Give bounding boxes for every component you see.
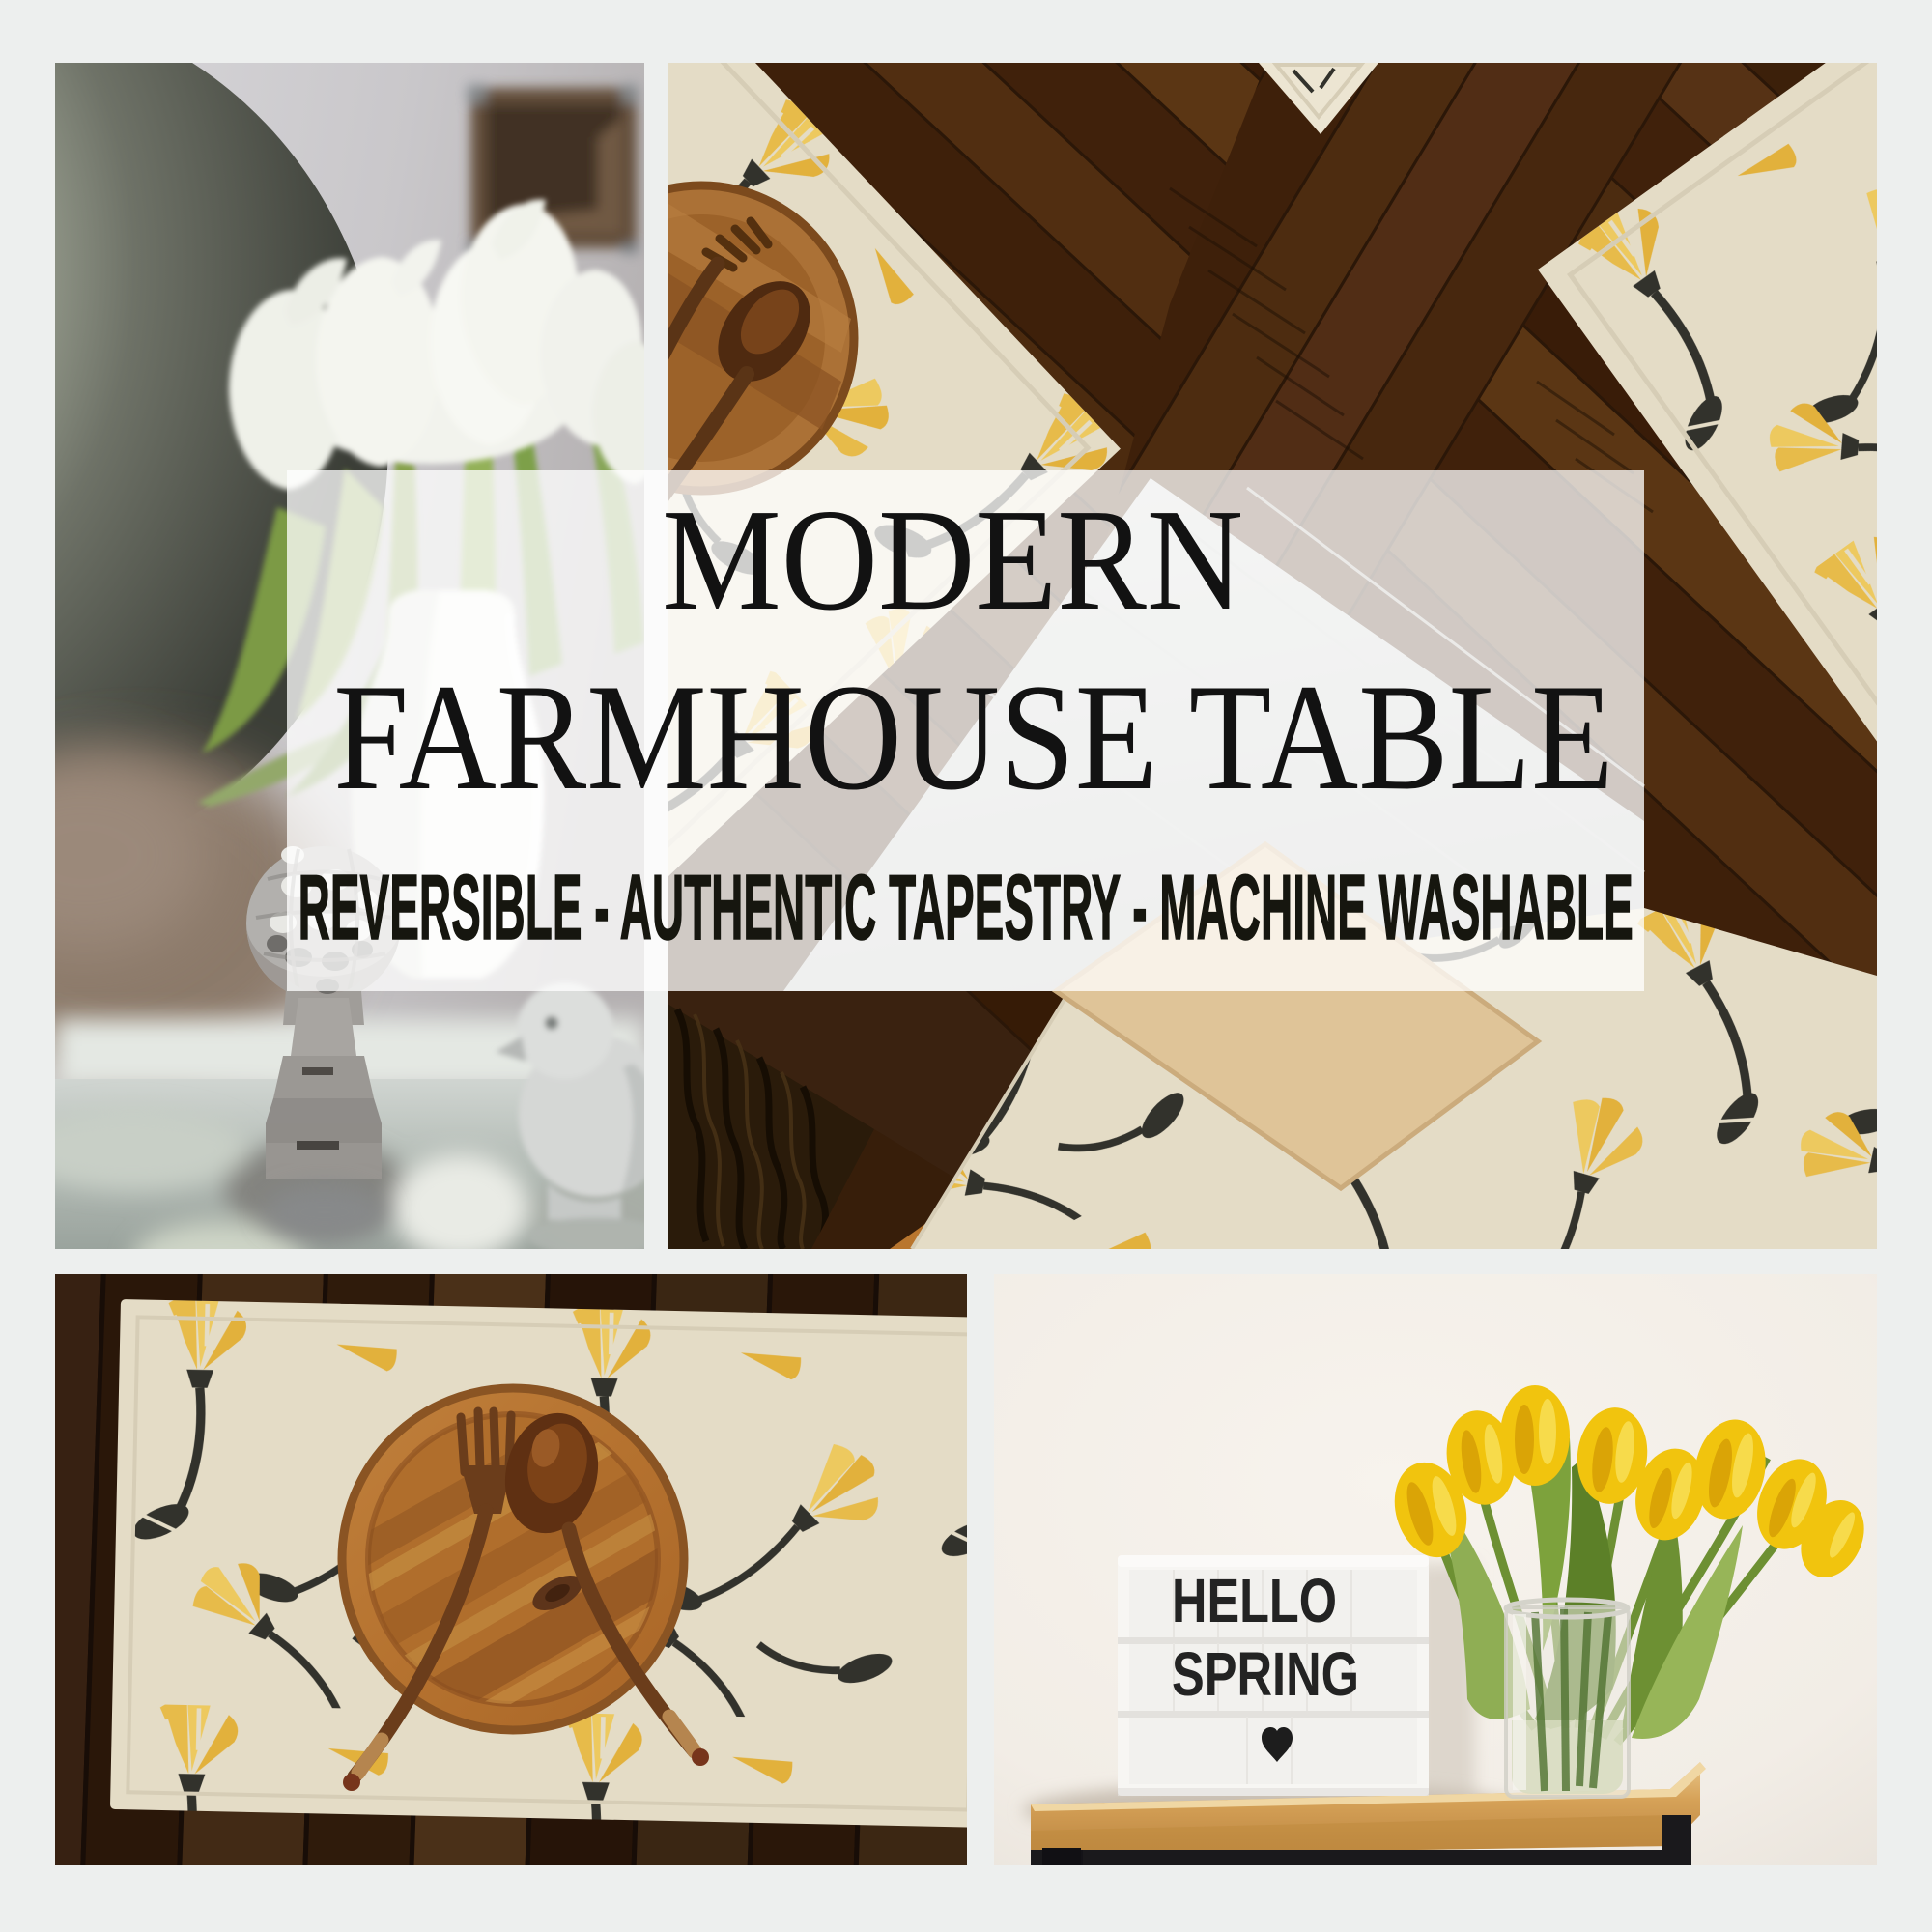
svg-text:SPRING: SPRING: [1172, 1639, 1359, 1709]
svg-text:HELLO: HELLO: [1172, 1566, 1337, 1635]
